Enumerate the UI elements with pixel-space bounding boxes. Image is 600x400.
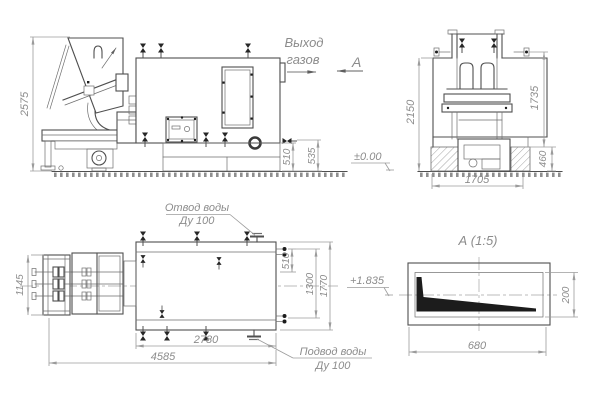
body-pedestal xyxy=(163,143,280,171)
water-outlet-label: Отвод воды Ду 100 xyxy=(165,202,256,236)
svg-text:Ду 100: Ду 100 xyxy=(314,360,352,372)
detail-view-a: А (1:5) 200 680 xyxy=(399,233,578,356)
mid-frame xyxy=(442,89,512,139)
elevation-mark-zero: ±0.00 xyxy=(351,151,394,171)
dim-text: 535 xyxy=(307,147,318,164)
elevation-text: ±0.00 xyxy=(354,151,382,163)
svg-text:газов: газов xyxy=(286,52,319,67)
svg-text:Выход: Выход xyxy=(284,35,323,50)
dim-text: 2150 xyxy=(405,99,417,125)
drawing-svg: 2575 510 535 ±0.00 Выход газов А xyxy=(0,0,600,400)
dim-1735: 1735 xyxy=(512,52,556,147)
dim-2780: 2780 xyxy=(136,333,276,349)
side-view: 2575 510 535 ±0.00 Выход газов А xyxy=(19,35,394,177)
feeder-base-platform xyxy=(41,130,122,171)
dim-1145: 1145 xyxy=(15,255,44,315)
plan-view: Отвод воды Ду 100 Подвод воды Ду 100 xyxy=(15,202,393,372)
water-inlet-label: Подвод воды Ду 100 xyxy=(257,339,372,372)
valve-symbol xyxy=(140,44,146,59)
dim-text: 2575 xyxy=(19,91,31,117)
elevation-mark-1835: +1.835 xyxy=(347,275,393,296)
dim-text: 510 xyxy=(281,252,292,269)
foundation-block xyxy=(431,147,459,171)
dim-1300: 1300 xyxy=(288,249,320,318)
ground-hatch xyxy=(54,173,345,177)
detail-title: А (1:5) xyxy=(457,233,497,248)
side-fitting-right xyxy=(514,48,529,56)
dim-text: 1300 xyxy=(305,272,316,295)
dim-text: 680 xyxy=(468,340,487,352)
dim-text: 1705 xyxy=(465,174,490,186)
drawing-sheet: 2575 510 535 ±0.00 Выход газов А xyxy=(0,0,600,400)
dim-680: 680 xyxy=(409,327,546,356)
ground-hatch xyxy=(420,173,561,177)
gas-outlet-label: Выход газов xyxy=(284,35,323,72)
valve-symbol xyxy=(245,44,251,59)
water-inlet-flange xyxy=(247,330,261,340)
u-pipes xyxy=(460,63,494,88)
side-fitting-left xyxy=(434,48,450,56)
dim-text: 2780 xyxy=(193,334,219,346)
dim-text: 510 xyxy=(282,148,293,165)
feeder-plan xyxy=(32,253,136,315)
dim-text: 4585 xyxy=(151,351,176,363)
elevation-text: +1.835 xyxy=(350,275,385,287)
fuel-hopper xyxy=(68,38,123,113)
svg-text:Подвод воды: Подвод воды xyxy=(300,346,367,358)
boiler-body-plan xyxy=(136,242,276,330)
svg-text:Ду 100: Ду 100 xyxy=(178,215,216,227)
valve-symbol xyxy=(491,39,497,54)
dim-text: 1145 xyxy=(15,274,26,296)
svg-text:Отвод воды: Отвод воды xyxy=(165,202,229,214)
view-direction-marker: А xyxy=(337,54,363,71)
foundation-block xyxy=(511,147,530,171)
duct-plan xyxy=(124,261,136,306)
svg-text:А: А xyxy=(351,54,361,70)
dim-text: 1770 xyxy=(319,274,330,297)
dim-text: 200 xyxy=(561,286,572,304)
dim-510-plan: 510 xyxy=(280,249,296,272)
dim-510-side: 510 xyxy=(281,143,296,171)
dim-text: 460 xyxy=(538,150,549,167)
water-outlet-flange xyxy=(250,234,264,243)
base-machine xyxy=(458,139,510,171)
dim-460: 460 xyxy=(538,147,556,171)
boiler-body xyxy=(136,44,297,172)
valve-symbol xyxy=(459,39,465,54)
valve-symbol xyxy=(158,44,164,59)
dim-2150: 2150 xyxy=(405,58,433,171)
gas-outlet-flange xyxy=(280,63,285,82)
front-view: 2150 1735 460 1705 xyxy=(405,30,562,189)
dim-text: 1735 xyxy=(529,85,541,110)
